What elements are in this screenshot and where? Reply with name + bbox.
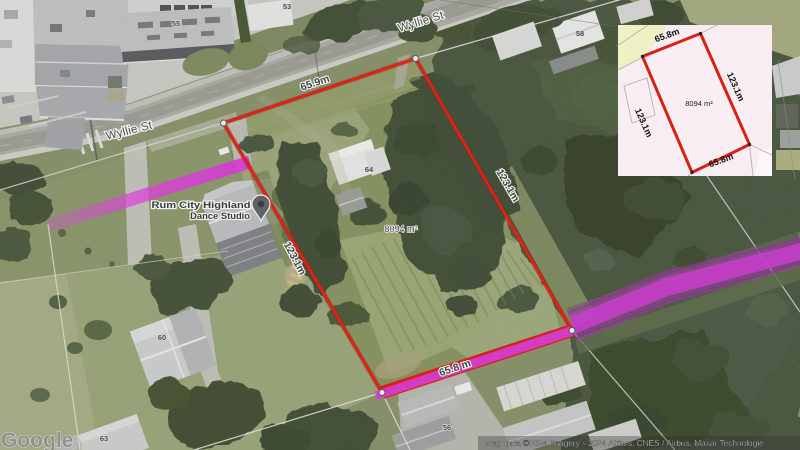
svg-text:8094 m²: 8094 m² [685,99,713,108]
svg-text:Google: Google [1,429,73,450]
svg-text:Map data ©2024 Imagery ©2024 A: Map data ©2024 Imagery ©2024 Airbus, CNE… [486,438,764,448]
